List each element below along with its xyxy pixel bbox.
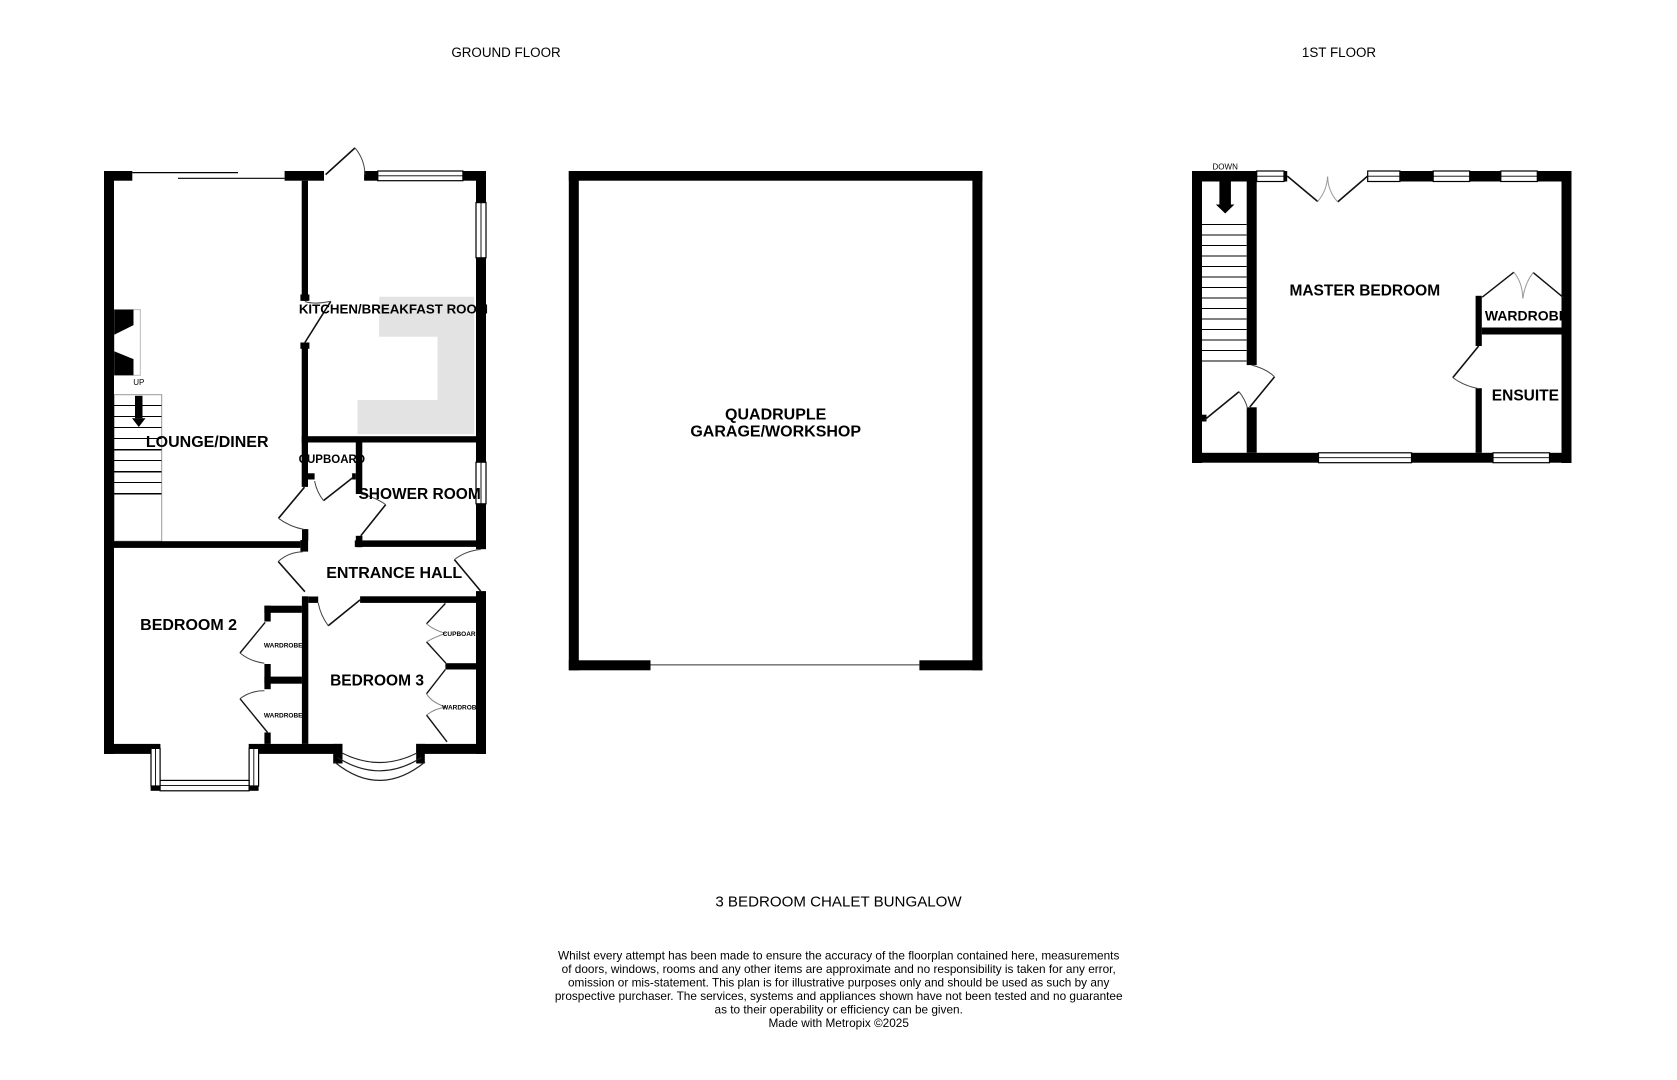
svg-text:LOUNGE/DINER: LOUNGE/DINER — [146, 434, 269, 451]
svg-text:WARDROBE: WARDROBE — [442, 705, 481, 712]
svg-text:UP: UP — [133, 378, 144, 387]
svg-text:Whilst every attempt has been: Whilst every attempt has been made to en… — [558, 949, 1119, 963]
svg-text:as to their operability or eff: as to their operability or efficiency ca… — [715, 1003, 963, 1017]
svg-text:CUPBOARD: CUPBOARD — [299, 454, 365, 466]
svg-text:ENTRANCE HALL: ENTRANCE HALL — [326, 565, 462, 582]
svg-text:Made with Metropix ©2025: Made with Metropix ©2025 — [768, 1016, 909, 1030]
svg-text:GARAGE/WORKSHOP: GARAGE/WORKSHOP — [690, 424, 861, 441]
svg-text:1ST FLOOR: 1ST FLOOR — [1302, 45, 1376, 60]
svg-text:BEDROOM 3: BEDROOM 3 — [330, 672, 424, 689]
svg-text:QUADRUPLE: QUADRUPLE — [725, 407, 827, 424]
svg-text:prospective purchaser. The ser: prospective purchaser. The services, sys… — [555, 989, 1123, 1003]
svg-text:MASTER BEDROOM: MASTER BEDROOM — [1289, 282, 1440, 299]
svg-text:GROUND FLOOR: GROUND FLOOR — [451, 45, 561, 60]
svg-text:3 BEDROOM CHALET BUNGALOW: 3 BEDROOM CHALET BUNGALOW — [715, 894, 962, 911]
svg-text:ENSUITE: ENSUITE — [1492, 388, 1559, 405]
svg-text:WARDROBE: WARDROBE — [264, 643, 303, 650]
svg-text:WARDROBE: WARDROBE — [1485, 308, 1568, 324]
svg-text:CUPBOARD: CUPBOARD — [443, 631, 481, 638]
svg-text:SHOWER ROOM: SHOWER ROOM — [358, 486, 480, 503]
svg-text:omission or mis-statement. Thi: omission or mis-statement. This plan is … — [568, 976, 1109, 990]
svg-text:KITCHEN/BREAKFAST ROOM: KITCHEN/BREAKFAST ROOM — [299, 302, 488, 317]
svg-text:of doors, windows, rooms and a: of doors, windows, rooms and any other i… — [562, 962, 1116, 976]
svg-text:WARDROBE: WARDROBE — [264, 713, 303, 720]
svg-text:BEDROOM 2: BEDROOM 2 — [140, 617, 237, 634]
svg-text:DOWN: DOWN — [1213, 163, 1239, 172]
